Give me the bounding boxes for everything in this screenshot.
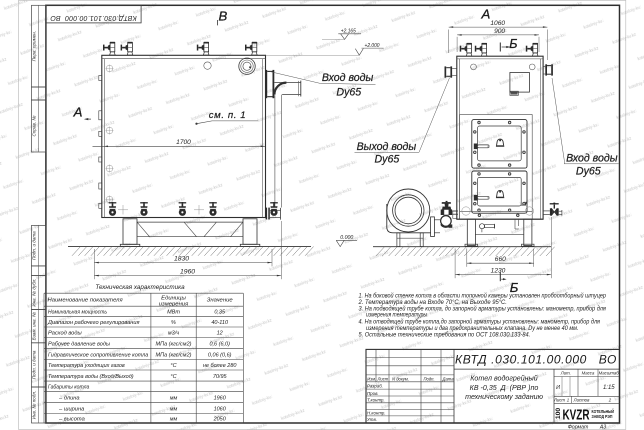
svg-text:Разраб.: Разраб. (367, 384, 383, 389)
svg-text:ЗАВОД РЭП: ЗАВОД РЭП (592, 414, 613, 419)
svg-text:100: 100 (555, 408, 562, 420)
svg-text:Расход воды: Расход воды (48, 330, 82, 336)
svg-text:см. п. 1: см. п. 1 (209, 110, 246, 121)
svg-text:Пров.: Пров. (367, 391, 379, 396)
svg-text:Диапазон рабочего регулировани: Диапазон рабочего регулирования (47, 320, 139, 326)
svg-text:Масса: Масса (582, 370, 595, 375)
svg-text:Подп. и дата: Подп. и дата (31, 231, 36, 260)
svg-text:1960: 1960 (180, 268, 195, 275)
svg-text:МПа (кгс/см2): МПа (кгс/см2) (156, 341, 192, 347)
svg-text:Лист: Лист (553, 398, 565, 403)
svg-text:КВТД.030.101.00.000 ВО: КВТД.030.101.00.000 ВО (50, 14, 137, 21)
svg-text:Выход воды: Выход воды (357, 141, 417, 153)
svg-text:– длина: – длина (58, 395, 80, 401)
svg-text:1830: 1830 (174, 255, 189, 262)
svg-text:мм: мм (170, 395, 178, 401)
svg-text:А: А (73, 105, 83, 120)
svg-text:Лит.: Лит. (560, 370, 571, 375)
svg-text:1060: 1060 (214, 406, 227, 412)
svg-text:Т.контр.: Т.контр. (367, 397, 385, 402)
svg-text:Габариты котла: Габариты котла (48, 385, 89, 391)
svg-text:KVZR: KVZR (563, 406, 590, 423)
svg-text:КВ -0,35 Д (РВР )по: КВ -0,35 Д (РВР )по (470, 384, 539, 392)
svg-text:А: А (481, 6, 491, 21)
svg-text:Инв. № подл.: Инв. № подл. (31, 391, 36, 420)
svg-text:70/95: 70/95 (213, 374, 228, 380)
svg-text:2050: 2050 (213, 416, 227, 422)
svg-text:Изм.: Изм. (367, 377, 376, 382)
svg-text:°С: °С (170, 374, 176, 380)
svg-text:мм: мм (170, 416, 178, 422)
svg-text:Dу65: Dу65 (375, 153, 400, 165)
svg-text:Н.контр.: Н.контр. (367, 411, 386, 416)
svg-text:мм: мм (170, 406, 178, 412)
svg-text:N докум.: N докум. (392, 377, 409, 382)
svg-text:900: 900 (494, 28, 505, 35)
svg-text:Вход воды: Вход воды (566, 153, 618, 165)
svg-text:Подп.: Подп. (424, 377, 435, 382)
svg-text:И: И (556, 385, 560, 391)
svg-text:Гидравлическое сопротивление к: Гидравлическое сопротивление котла (48, 352, 148, 358)
svg-text:А3: А3 (599, 424, 606, 430)
svg-text:Значение: Значение (207, 298, 234, 304)
svg-text:1960: 1960 (214, 395, 227, 401)
svg-text:КВТД .030.101.00.000 ВО: КВТД .030.101.00.000 ВО (455, 353, 617, 367)
svg-text:Dу65: Dу65 (336, 86, 361, 98)
svg-text:Dу65: Dу65 (576, 165, 601, 177)
svg-text:0,35: 0,35 (214, 310, 226, 316)
svg-text:0,06 (0,6): 0,06 (0,6) (208, 352, 232, 358)
svg-text:Подп. и дата: Подп. и дата (31, 350, 36, 379)
svg-text:40-110: 40-110 (211, 320, 229, 326)
svg-text:Листов: Листов (573, 398, 590, 403)
svg-text:– высота: – высота (58, 416, 85, 422)
svg-text:0,6 (6,0): 0,6 (6,0) (209, 341, 230, 347)
svg-text:Формат: Формат (568, 424, 589, 430)
svg-text:1060: 1060 (490, 20, 505, 27)
svg-text:660: 660 (495, 256, 506, 263)
svg-text:1:15: 1:15 (603, 385, 615, 391)
svg-text:– ширина: – ширина (58, 406, 84, 412)
svg-text:В: В (219, 9, 228, 24)
svg-text:Номинальная мощность: Номинальная мощность (48, 310, 107, 316)
svg-text:измерения: измерения (159, 302, 189, 308)
svg-text:Температура воды (Вход/Выход): Температура воды (Вход/Выход) (48, 374, 134, 380)
svg-text:0.000: 0.000 (340, 235, 354, 241)
svg-text:Взам. инв. №: Взам. инв. № (31, 312, 36, 340)
svg-text:1230: 1230 (491, 267, 506, 274)
svg-text:%: % (171, 320, 176, 326)
svg-text:1700: 1700 (176, 139, 191, 146)
svg-text:Вход воды: Вход воды (322, 72, 374, 84)
svg-text:Наименование показателя: Наименование показателя (48, 298, 124, 304)
svg-text:Масштаб: Масштаб (599, 370, 620, 375)
svg-text:Перв. примен.: Перв. примен. (31, 31, 36, 62)
svg-text:техническому заданию: техническому заданию (465, 393, 543, 401)
svg-text:Техническая характеристика: Техническая характеристика (95, 284, 185, 291)
svg-text:Котел водогрейный: Котел водогрейный (470, 375, 538, 383)
svg-text:Утв.: Утв. (367, 417, 377, 422)
svg-text:МПа (кгс/см2): МПа (кгс/см2) (156, 352, 192, 358)
svg-text:Б: Б (509, 37, 517, 51)
svg-text:Справ. №: Справ. № (31, 116, 36, 137)
svg-text:°С: °С (170, 363, 176, 369)
svg-text:Рабочее давление воды: Рабочее давление воды (48, 341, 111, 347)
svg-text:Температура уходящих газов: Температура уходящих газов (48, 363, 125, 369)
svg-text:5. Остальные технические треб: 5. Остальные технические требования по О… (359, 332, 531, 339)
svg-text:Инв. № дубл.: Инв. № дубл. (31, 278, 36, 306)
svg-text:Лист: Лист (377, 377, 389, 382)
svg-text:12: 12 (217, 330, 223, 336)
svg-text:Единицы: Единицы (161, 295, 186, 301)
svg-text:м3/ч: м3/ч (168, 330, 179, 336)
svg-text:МВт: МВт (167, 310, 180, 316)
svg-text:Дата: Дата (442, 377, 455, 382)
svg-text:не более 280: не более 280 (203, 363, 238, 369)
